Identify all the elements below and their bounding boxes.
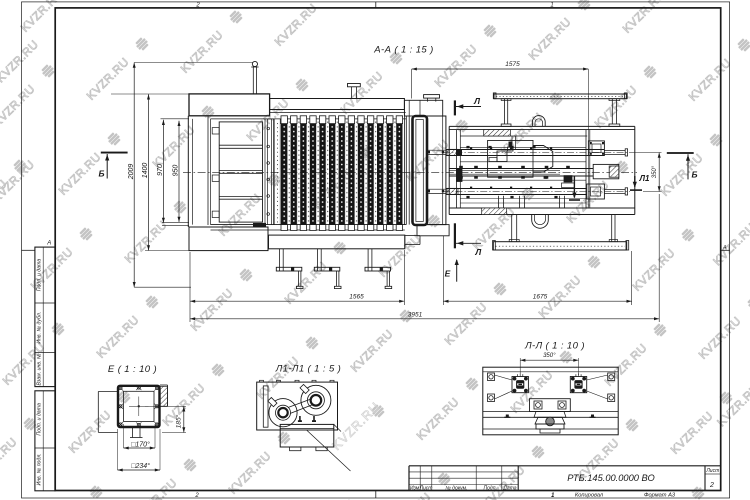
svg-text:Л: Л xyxy=(473,96,480,106)
svg-text:Б: Б xyxy=(691,170,697,180)
svg-text:Подп.: Подп. xyxy=(484,485,497,491)
svg-text:Б: Б xyxy=(98,169,104,179)
svg-text:Дата: Дата xyxy=(502,485,516,491)
svg-text:□234°: □234° xyxy=(131,462,150,470)
svg-text:1: 1 xyxy=(551,493,554,499)
svg-text:3951: 3951 xyxy=(408,312,423,319)
svg-text:950: 950 xyxy=(172,165,179,177)
svg-text:№ докум.: № докум. xyxy=(445,485,467,491)
svg-text:1565: 1565 xyxy=(349,293,364,300)
svg-text:Инв. № дубл.: Инв. № дубл. xyxy=(37,312,43,344)
svg-text:□170°: □170° xyxy=(131,441,150,449)
svg-text:А-А ( 1 : 15 ): А-А ( 1 : 15 ) xyxy=(373,45,433,56)
svg-text:Е: Е xyxy=(445,269,451,279)
svg-text:Взам. инв. №: Взам. инв. № xyxy=(37,353,43,385)
svg-text:Л: Л xyxy=(474,247,481,257)
svg-text:Л-Л ( 1 : 10 ): Л-Л ( 1 : 10 ) xyxy=(524,340,585,351)
svg-text:1575: 1575 xyxy=(505,61,520,68)
svg-text:2: 2 xyxy=(709,482,714,489)
svg-text:А: А xyxy=(46,241,51,247)
svg-text:Е ( 1 : 10 ): Е ( 1 : 10 ) xyxy=(108,364,157,375)
svg-text:Л1-Л1 ( 1 : 5 ): Л1-Л1 ( 1 : 5 ) xyxy=(275,364,342,375)
svg-text:350°: 350° xyxy=(543,353,556,359)
svg-text:А: А xyxy=(722,246,727,252)
svg-text:Формат А3: Формат А3 xyxy=(644,492,676,498)
svg-text:1675: 1675 xyxy=(533,293,548,300)
svg-text:Л1: Л1 xyxy=(639,174,650,183)
svg-text:2: 2 xyxy=(195,2,200,8)
svg-text:Лист: Лист xyxy=(419,485,433,491)
svg-text:Копировал: Копировал xyxy=(575,492,604,498)
svg-text:2009: 2009 xyxy=(128,164,135,181)
svg-text:Подп. и дата: Подп. и дата xyxy=(37,403,43,436)
svg-text:Инв. № подл.: Инв. № подл. xyxy=(37,453,43,485)
svg-text:185°: 185° xyxy=(175,414,183,428)
svg-text:Лист: Лист xyxy=(705,468,719,474)
svg-text:Изм: Изм xyxy=(410,485,420,491)
svg-text:2: 2 xyxy=(194,493,199,499)
svg-text:1: 1 xyxy=(550,2,553,8)
svg-text:1400: 1400 xyxy=(142,163,149,179)
svg-text:350°: 350° xyxy=(652,165,658,178)
svg-text:РТБ.145.00.0000 ВО: РТБ.145.00.0000 ВО xyxy=(567,473,655,483)
svg-text:970: 970 xyxy=(157,164,164,176)
svg-text:Подп. и дата: Подп. и дата xyxy=(37,259,43,292)
